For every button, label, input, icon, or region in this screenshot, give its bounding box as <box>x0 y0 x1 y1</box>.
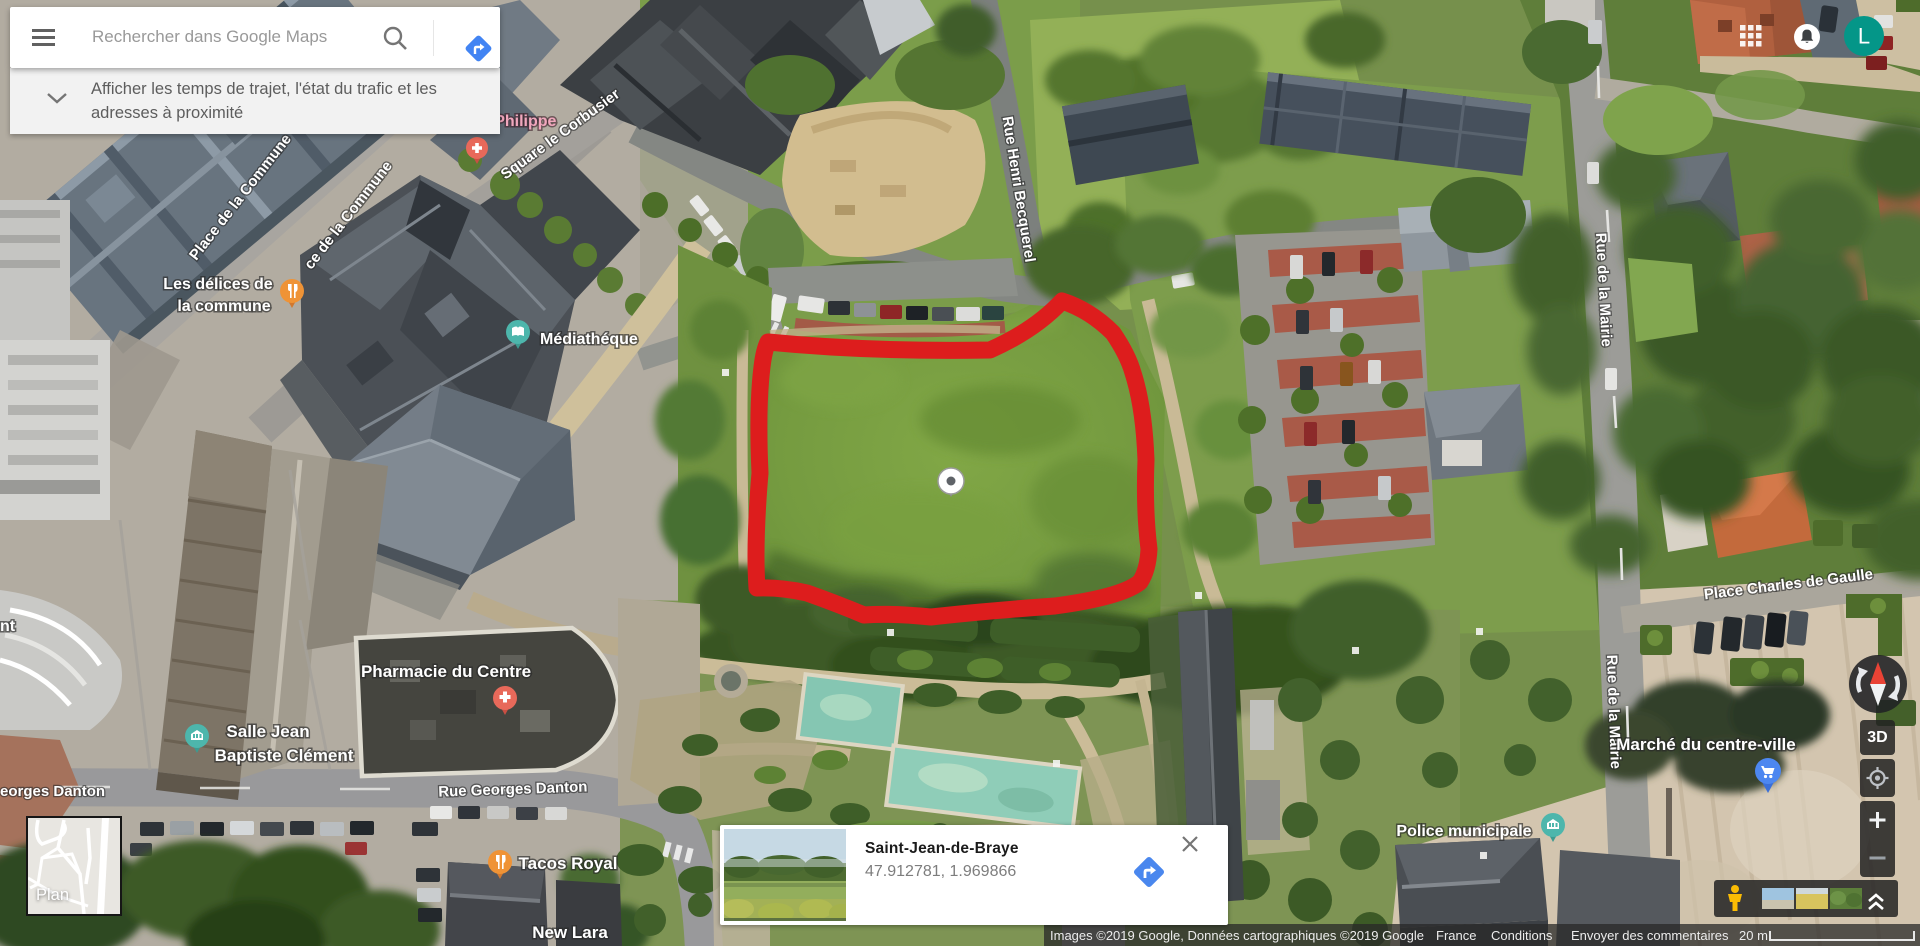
svg-text:Baptiste Clément: Baptiste Clément <box>215 746 354 765</box>
svg-text:eorges Danton: eorges Danton <box>0 783 105 800</box>
svg-text:Salle Jean: Salle Jean <box>226 722 309 741</box>
svg-text:New Lara: New Lara <box>532 923 608 942</box>
svg-text:nt: nt <box>0 618 16 635</box>
svg-text:la commune: la commune <box>177 298 270 315</box>
svg-text:Pharmacie du Centre: Pharmacie du Centre <box>361 662 531 681</box>
svg-text:Police municipale: Police municipale <box>1396 823 1531 840</box>
svg-text:L: L <box>1858 24 1870 49</box>
svg-text:Les délices de: Les délices de <box>163 276 272 293</box>
svg-text:Tacos Royal: Tacos Royal <box>519 854 618 873</box>
svg-text:Médiathéque: Médiathéque <box>540 331 638 348</box>
svg-text:Marché du centre-ville: Marché du centre-ville <box>1616 735 1796 754</box>
